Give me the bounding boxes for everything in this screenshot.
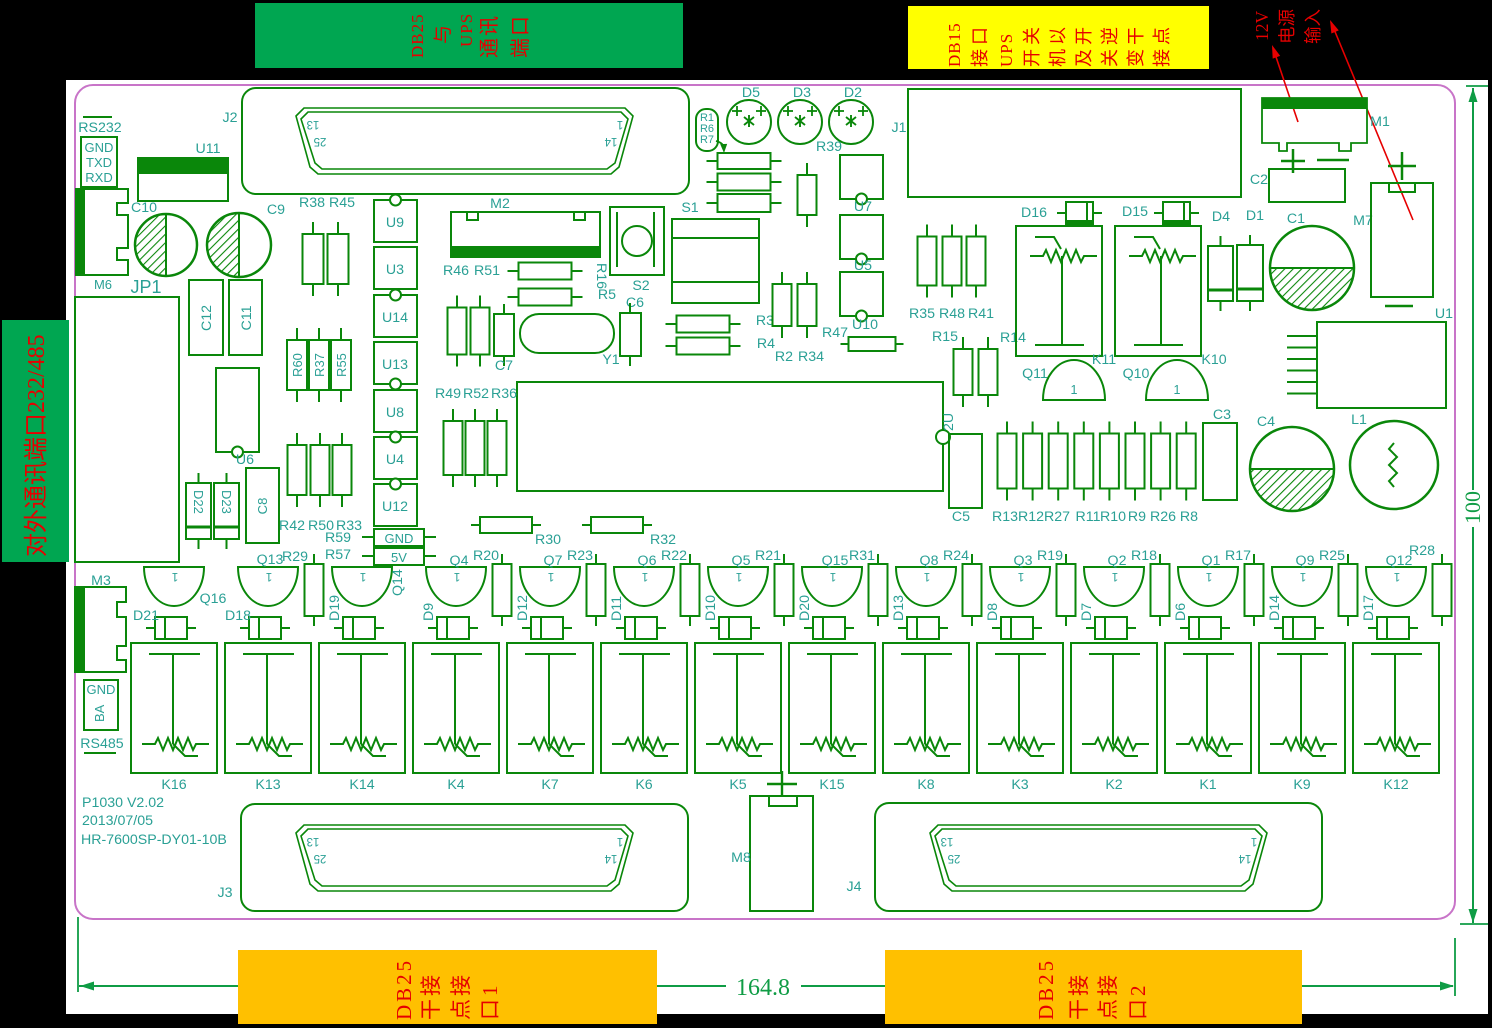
svg-text:TXD: TXD [86, 155, 112, 170]
svg-text:R55: R55 [334, 353, 349, 377]
svg-text:R60: R60 [290, 353, 305, 377]
svg-text:R34: R34 [798, 349, 824, 365]
svg-text:U3: U3 [386, 262, 404, 278]
svg-text:R18: R18 [1131, 548, 1157, 564]
svg-text:14: 14 [604, 852, 617, 864]
svg-text:接口: 接口 [970, 23, 990, 67]
svg-text:R11: R11 [1076, 509, 1101, 525]
svg-text:Q5: Q5 [732, 553, 751, 569]
svg-text:D22: D22 [191, 490, 206, 514]
svg-text:R24: R24 [943, 548, 969, 564]
svg-text:D6: D6 [1173, 603, 1189, 621]
svg-text:R57: R57 [325, 547, 351, 563]
svg-text:电源: 电源 [1277, 9, 1297, 44]
svg-text:C1: C1 [1287, 211, 1305, 227]
svg-text:C4: C4 [1257, 414, 1275, 430]
svg-text:C2: C2 [1250, 172, 1268, 188]
svg-text:Q8: Q8 [920, 553, 939, 569]
svg-text:及开: 及开 [1074, 23, 1094, 67]
svg-text:D12: D12 [515, 595, 531, 621]
svg-text:输入: 输入 [1303, 9, 1323, 44]
svg-text:K5: K5 [729, 777, 746, 793]
svg-text:R3: R3 [756, 313, 774, 329]
svg-text:开关: 开关 [1022, 23, 1042, 67]
svg-text:R15: R15 [932, 329, 958, 345]
svg-text:R19: R19 [1037, 548, 1063, 564]
svg-text:1: 1 [1112, 570, 1118, 582]
svg-text:U1: U1 [1435, 306, 1453, 322]
svg-text:1: 1 [830, 570, 836, 582]
svg-text:1: 1 [548, 570, 554, 582]
svg-text:R8: R8 [1180, 509, 1198, 525]
svg-text:R51: R51 [474, 263, 500, 279]
svg-text:K4: K4 [447, 777, 464, 793]
svg-text:1: 1 [1300, 570, 1306, 582]
svg-text:D8: D8 [985, 603, 1001, 621]
svg-text:口1: 口1 [478, 983, 502, 1021]
svg-text:D15: D15 [1122, 204, 1148, 220]
svg-text:R7: R7 [700, 134, 714, 146]
svg-text:DB25: DB25 [408, 13, 427, 58]
svg-text:C5: C5 [952, 509, 970, 525]
svg-text:D23: D23 [219, 490, 234, 514]
svg-text:R16: R16 [593, 263, 609, 289]
svg-text:14: 14 [1238, 852, 1251, 864]
svg-text:C12: C12 [199, 305, 215, 331]
svg-text:Q14: Q14 [390, 569, 406, 596]
svg-text:R49: R49 [435, 386, 461, 402]
svg-text:GND: GND [385, 531, 414, 546]
svg-text:5V: 5V [391, 550, 407, 565]
svg-text:1: 1 [617, 835, 623, 847]
svg-text:K2: K2 [1105, 777, 1122, 793]
svg-text:K15: K15 [819, 777, 844, 793]
svg-text:R45: R45 [329, 195, 355, 211]
svg-text:R59: R59 [325, 530, 351, 546]
svg-text:R12: R12 [1018, 509, 1044, 525]
svg-text:R21: R21 [755, 548, 781, 564]
svg-text:R26: R26 [1150, 509, 1176, 525]
svg-text:干接: 干接 [1067, 972, 1091, 1020]
svg-text:D14: D14 [1267, 595, 1283, 621]
svg-text:C11: C11 [239, 305, 255, 330]
svg-text:D7: D7 [1079, 603, 1095, 621]
svg-text:U11: U11 [196, 141, 221, 157]
svg-text:K3: K3 [1011, 777, 1028, 793]
svg-text:U6: U6 [236, 452, 254, 468]
svg-text:R32: R32 [650, 532, 676, 548]
svg-text:GND: GND [87, 682, 116, 697]
svg-text:D5: D5 [742, 85, 760, 101]
svg-text:K11: K11 [1092, 352, 1116, 368]
svg-text:K7: K7 [541, 777, 558, 793]
svg-text:C7: C7 [495, 358, 513, 374]
svg-text:D4: D4 [1212, 209, 1230, 225]
svg-text:13: 13 [307, 118, 320, 130]
svg-text:1: 1 [924, 570, 930, 582]
svg-text:R41: R41 [968, 306, 994, 322]
svg-text:1: 1 [1394, 570, 1400, 582]
svg-text:R36: R36 [491, 386, 517, 402]
svg-text:D11: D11 [609, 596, 625, 621]
svg-text:Q6: Q6 [638, 553, 657, 569]
svg-text:1: 1 [266, 570, 272, 582]
svg-text:S1: S1 [681, 200, 698, 216]
svg-text:M7: M7 [1353, 213, 1373, 229]
svg-text:14: 14 [604, 135, 617, 147]
svg-text:P1030 V2.02: P1030 V2.02 [82, 795, 164, 811]
svg-text:D9: D9 [421, 603, 437, 621]
svg-text:K10: K10 [1201, 352, 1226, 368]
svg-text:Q11: Q11 [1022, 366, 1048, 382]
svg-text:1: 1 [642, 570, 648, 582]
svg-text:1: 1 [736, 570, 742, 582]
svg-text:U12: U12 [382, 499, 408, 515]
svg-text:U13: U13 [382, 357, 408, 373]
svg-text:Q7: Q7 [544, 553, 563, 569]
svg-text:25: 25 [314, 852, 327, 864]
svg-text:U7: U7 [854, 199, 872, 215]
svg-text:D18: D18 [225, 608, 251, 624]
svg-text:BA: BA [92, 704, 107, 722]
svg-text:R38: R38 [299, 195, 325, 211]
svg-text:R5: R5 [598, 287, 616, 303]
svg-text:K12: K12 [1383, 777, 1408, 793]
svg-text:Q2: Q2 [1108, 553, 1127, 569]
svg-text:C6: C6 [626, 295, 644, 311]
svg-text:U8: U8 [386, 405, 404, 421]
svg-text:13: 13 [307, 835, 320, 847]
svg-text:C3: C3 [1213, 407, 1231, 423]
svg-text:D21: D21 [133, 608, 159, 624]
svg-text:12V: 12V [1252, 11, 1272, 42]
svg-text:R39: R39 [816, 139, 842, 155]
svg-text:D2: D2 [844, 85, 862, 101]
svg-text:UPS: UPS [457, 13, 476, 47]
svg-text:R42: R42 [279, 518, 305, 534]
svg-text:2013/07/05: 2013/07/05 [82, 813, 153, 829]
svg-text:Q10: Q10 [1123, 366, 1150, 382]
svg-text:D13: D13 [891, 595, 907, 621]
svg-text:口2: 口2 [1126, 983, 1150, 1021]
svg-text:R47: R47 [822, 325, 848, 341]
svg-text:R22: R22 [661, 548, 687, 564]
svg-text:D1: D1 [1246, 208, 1264, 224]
svg-text:D17: D17 [1361, 595, 1377, 621]
svg-text:R20: R20 [473, 548, 499, 564]
svg-text:25: 25 [948, 852, 961, 864]
svg-text:K14: K14 [349, 777, 374, 793]
svg-text:JP1: JP1 [130, 277, 161, 297]
svg-text:D3: D3 [793, 85, 811, 101]
svg-text:与: 与 [432, 25, 454, 44]
svg-text:R10: R10 [1100, 509, 1126, 525]
svg-text:DB25: DB25 [392, 958, 416, 1020]
svg-text:R2: R2 [775, 349, 793, 365]
svg-text:R48: R48 [939, 306, 965, 322]
svg-text:M2: M2 [490, 196, 510, 212]
svg-text:R37: R37 [312, 353, 327, 377]
svg-text:K6: K6 [635, 777, 652, 793]
svg-text:K8: K8 [917, 777, 934, 793]
svg-text:100: 100 [1460, 491, 1485, 524]
svg-text:R14: R14 [1000, 330, 1026, 346]
svg-text:变干: 变干 [1126, 23, 1146, 67]
svg-text:K13: K13 [255, 777, 280, 793]
svg-text:R30: R30 [535, 532, 561, 548]
svg-text:Q13: Q13 [257, 552, 284, 568]
svg-text:K1: K1 [1199, 777, 1216, 793]
svg-text:R31: R31 [849, 548, 875, 564]
svg-text:R28: R28 [1409, 543, 1435, 559]
svg-text:通讯: 通讯 [478, 14, 501, 58]
svg-text:Q15: Q15 [822, 553, 849, 569]
svg-text:Y1: Y1 [602, 352, 619, 368]
svg-text:1: 1 [1251, 835, 1257, 847]
svg-text:J3: J3 [218, 885, 233, 901]
svg-text:1: 1 [360, 570, 366, 582]
svg-text:D16: D16 [1021, 205, 1047, 221]
svg-text:D19: D19 [327, 595, 343, 621]
svg-text:S2: S2 [632, 278, 649, 294]
svg-text:25: 25 [314, 135, 327, 147]
svg-text:J2: J2 [223, 110, 238, 126]
svg-text:关逆: 关逆 [1100, 23, 1120, 67]
svg-text:D20: D20 [797, 595, 813, 621]
svg-text:Q16: Q16 [200, 591, 227, 607]
svg-text:J4: J4 [847, 879, 862, 895]
svg-text:U9: U9 [386, 215, 404, 231]
svg-text:R27: R27 [1044, 509, 1070, 525]
svg-text:L1: L1 [1351, 412, 1367, 428]
svg-text:M6: M6 [94, 277, 112, 292]
svg-text:M1: M1 [1370, 114, 1390, 130]
svg-text:K9: K9 [1293, 777, 1310, 793]
svg-text:R52: R52 [463, 386, 489, 402]
svg-text:1: 1 [1206, 570, 1212, 582]
svg-text:HR-7600SP-DY01-10B: HR-7600SP-DY01-10B [81, 832, 227, 848]
svg-text:干接: 干接 [419, 972, 443, 1020]
svg-text:1: 1 [617, 118, 623, 130]
svg-text:UPS: UPS [997, 33, 1016, 67]
svg-text:U4: U4 [386, 452, 404, 468]
svg-text:1: 1 [454, 570, 460, 582]
svg-text:U14: U14 [382, 310, 408, 326]
svg-text:Q4: Q4 [450, 553, 469, 569]
svg-text:164.8: 164.8 [736, 975, 790, 1001]
svg-text:1: 1 [1018, 570, 1024, 582]
svg-text:R4: R4 [757, 336, 775, 352]
svg-text:RXD: RXD [85, 170, 112, 185]
svg-text:J1: J1 [892, 120, 907, 136]
svg-text:RS485: RS485 [80, 736, 123, 752]
svg-text:K16: K16 [161, 777, 186, 793]
svg-text:点接: 点接 [1096, 972, 1120, 1020]
svg-text:端口: 端口 [509, 14, 532, 58]
svg-text:R29: R29 [282, 549, 308, 565]
svg-text:C10: C10 [131, 200, 157, 216]
svg-text:C8: C8 [255, 498, 270, 515]
svg-text:DB25: DB25 [1034, 958, 1058, 1020]
svg-text:对外通讯端口232/485: 对外通讯端口232/485 [23, 334, 50, 557]
svg-text:13: 13 [941, 835, 954, 847]
svg-text:R35: R35 [909, 306, 935, 322]
svg-text:RS232: RS232 [78, 120, 121, 136]
svg-text:D10: D10 [703, 595, 719, 621]
svg-text:R46: R46 [443, 263, 469, 279]
svg-text:点接: 点接 [449, 972, 473, 1020]
svg-text:Q9: Q9 [1296, 553, 1315, 569]
svg-text:R23: R23 [567, 548, 593, 564]
svg-text:U10: U10 [852, 317, 878, 333]
svg-text:GND: GND [85, 140, 114, 155]
svg-text:Q1: Q1 [1202, 553, 1221, 569]
svg-text:1: 1 [1071, 383, 1078, 397]
svg-text:R9: R9 [1128, 509, 1146, 525]
svg-text:1: 1 [1174, 383, 1181, 397]
svg-text:接点: 接点 [1152, 23, 1172, 67]
svg-text:R25: R25 [1319, 548, 1345, 564]
svg-text:M8: M8 [731, 850, 751, 866]
svg-text:C9: C9 [267, 202, 285, 218]
svg-text:机以: 机以 [1048, 23, 1068, 67]
svg-text:2U: 2U [941, 413, 957, 431]
svg-text:R13: R13 [992, 509, 1018, 525]
svg-text:Q3: Q3 [1014, 553, 1033, 569]
svg-text:R17: R17 [1225, 548, 1251, 564]
svg-text:DB15: DB15 [945, 22, 964, 67]
svg-text:1: 1 [172, 570, 178, 582]
